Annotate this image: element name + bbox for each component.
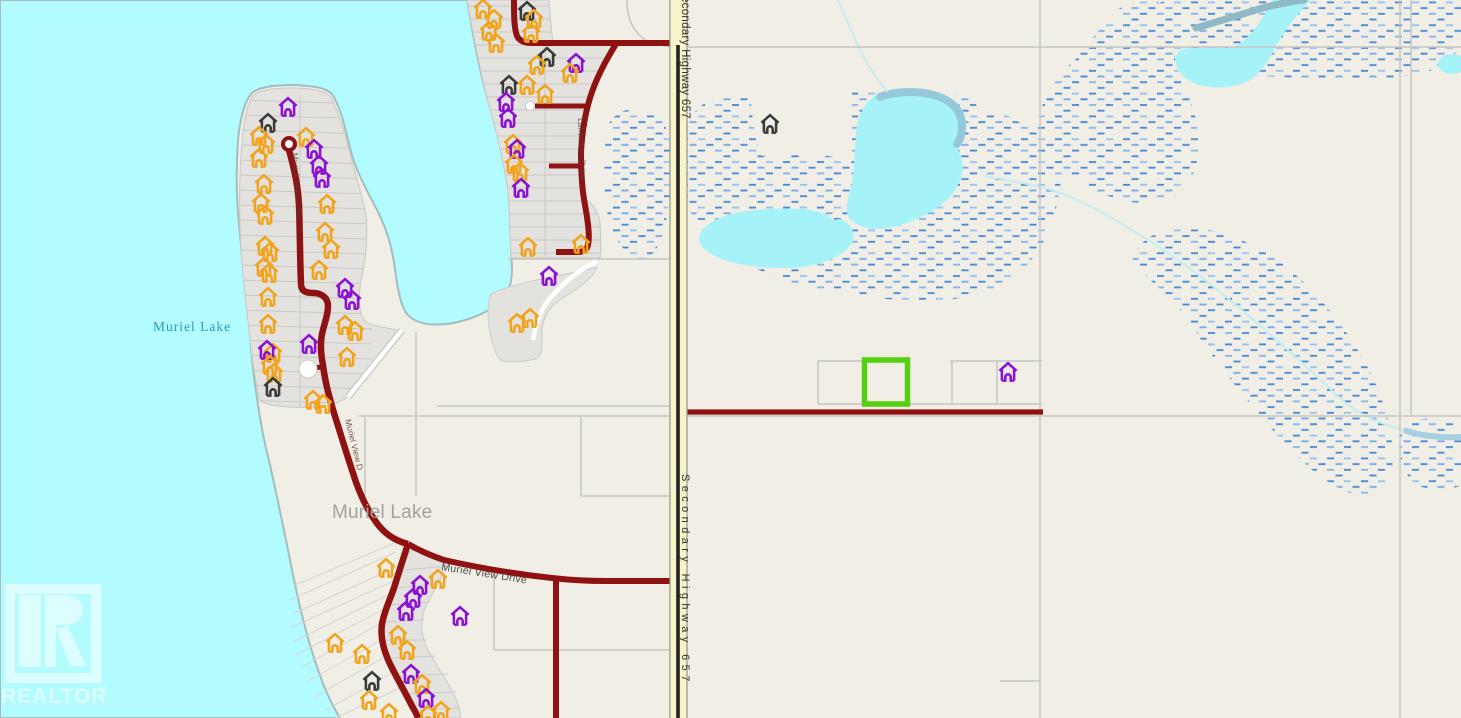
svg-text:Secondary Highway 657: Secondary Highway 657 (679, 0, 691, 119)
svg-text:Muriel Lake: Muriel Lake (153, 319, 231, 334)
svg-text:Secondary Highway 657: Secondary Highway 657 (679, 474, 691, 686)
svg-text:REALTOR: REALTOR (1, 685, 108, 708)
svg-text:Muriel Lake: Muriel Lake (332, 502, 432, 523)
svg-text:®: ® (100, 684, 107, 694)
